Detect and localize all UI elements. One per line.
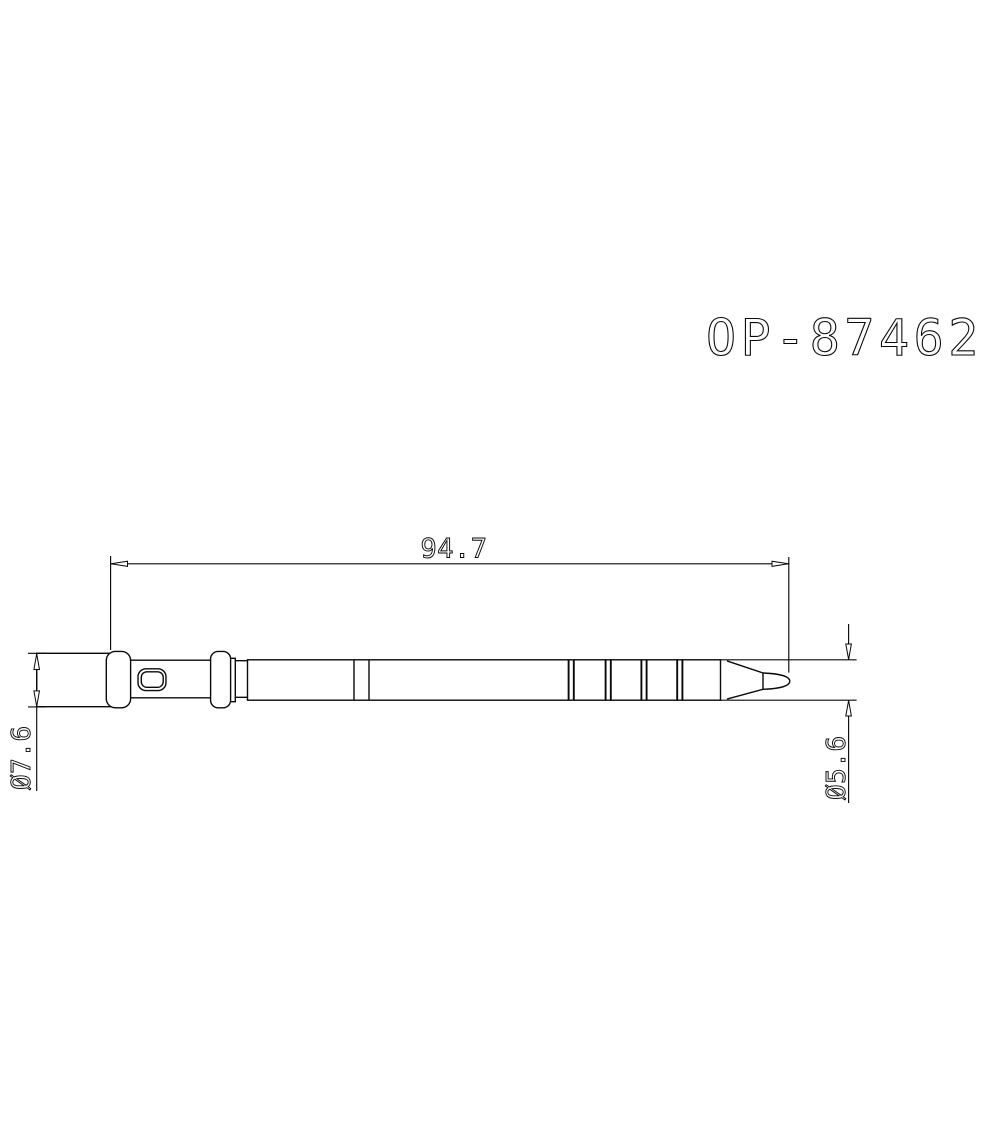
barrel bbox=[248, 660, 721, 700]
tip-taper-bottom bbox=[727, 689, 763, 699]
drawing-title: OP-87462 bbox=[706, 309, 983, 367]
collar-1 bbox=[106, 651, 130, 707]
dimension-overall-length: 94.7 bbox=[111, 534, 789, 673]
arrowhead-up bbox=[846, 701, 852, 716]
arrowhead-right bbox=[772, 561, 788, 566]
tip-nose bbox=[763, 673, 790, 689]
arrowhead-left bbox=[111, 561, 128, 566]
technical-drawing: OP-87462 bbox=[0, 0, 1000, 1122]
body-diameter-label: Ø7.6 bbox=[7, 725, 37, 790]
tip bbox=[727, 661, 790, 699]
end-cap bbox=[37, 653, 112, 706]
pen-body bbox=[37, 651, 790, 707]
tip-taper-top bbox=[727, 661, 763, 673]
button-hole-inner bbox=[141, 672, 163, 688]
arrowhead-down bbox=[846, 644, 852, 659]
tip-diameter-label: Ø5.6 bbox=[822, 735, 852, 800]
overall-length-label: 94.7 bbox=[420, 534, 487, 565]
collar-2 bbox=[211, 651, 231, 707]
drawing-canvas: OP-87462 bbox=[0, 0, 1000, 1122]
